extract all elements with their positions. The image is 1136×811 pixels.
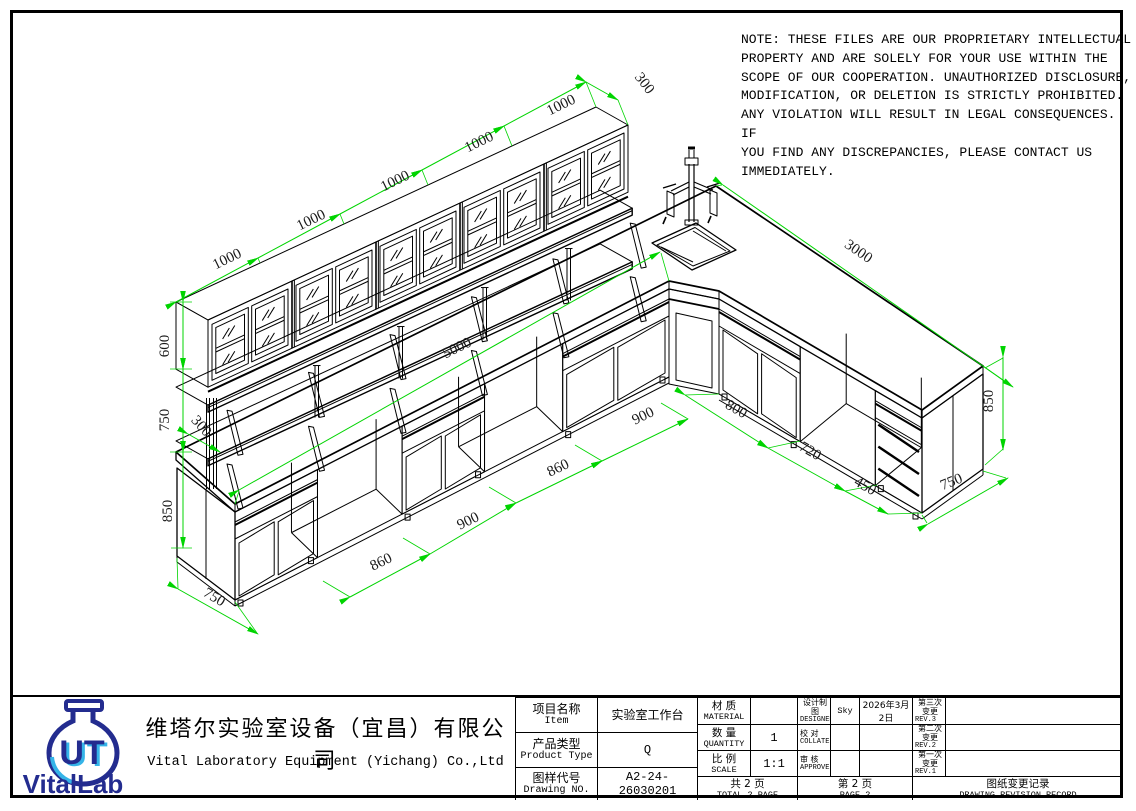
rev2-note-cell <box>945 724 1123 750</box>
item-label-cell: 项目名称 Item <box>515 697 597 732</box>
dim-label-1000: 1000 <box>294 207 328 235</box>
company-cell: UT UT VitalLab 维塔尔实验室设备（宜昌）有限公司 Vital La… <box>13 697 515 800</box>
collate-value-cell <box>830 724 859 750</box>
scale-label-en: SCALE <box>711 765 737 775</box>
designer-value-cell: Sky <box>830 697 859 724</box>
product-type-value: Q <box>644 743 651 757</box>
rev2-label-cell: 第二次变更 REV.2 <box>912 724 945 750</box>
logo-brand-text: VitalLab <box>13 769 133 800</box>
rev3-label-cell: 第三次变更 REV.3 <box>912 697 945 724</box>
quantity-label-cell: 数 量 QUANTITY <box>697 724 750 750</box>
title-block: UT UT VitalLab 维塔尔实验室设备（宜昌）有限公司 Vital La… <box>13 695 1123 798</box>
designer-label-en: DESIGNER <box>800 716 830 725</box>
dim-label-900: 900 <box>630 404 657 428</box>
dim-label-850: 850 <box>160 500 176 523</box>
quantity-label-en: QUANTITY <box>704 739 745 749</box>
revision-record-en: DRAWING REVISION RECORD <box>959 790 1076 800</box>
scale-value: 1:1 <box>763 757 785 771</box>
dim-label-1000: 1000 <box>210 246 244 274</box>
product-type-label-en: Product Type <box>520 751 592 763</box>
item-label-cn: 项目名称 <box>532 702 580 716</box>
collate-label-en: COLLATE <box>800 738 829 747</box>
page-number-en: PAGE 2 <box>840 790 871 800</box>
total-pages-cn: 共 2 页 <box>730 778 764 790</box>
collate-date-cell <box>859 724 912 750</box>
quantity-value-cell: 1 <box>750 724 797 750</box>
drawing-no-value-cell: A2-24-26030201 <box>597 767 697 800</box>
drawing-sheet: 1000100010001000100030060075030085075050… <box>0 0 1136 811</box>
collate-label-cell: 校 对 COLLATE <box>797 724 830 750</box>
item-value: 实验室工作台 <box>611 708 683 722</box>
rev3-note-cell <box>945 697 1123 724</box>
product-type-label-cn: 产品类型 <box>532 737 580 751</box>
dim-label-860: 860 <box>545 456 572 480</box>
dim-label-800: 800 <box>722 397 749 422</box>
designer-date: 2026年3月2日 <box>860 698 912 724</box>
dim-label-1000: 1000 <box>462 129 496 157</box>
drawing-no-value: A2-24-26030201 <box>598 770 697 798</box>
dim-label-900: 900 <box>455 509 482 533</box>
item-label-en: Item <box>544 716 568 728</box>
dim-label-3000: 3000 <box>841 237 875 267</box>
dim-label-1000: 1000 <box>378 168 412 196</box>
dim-label-750: 750 <box>200 585 228 610</box>
product-type-value-cell: Q <box>597 732 697 767</box>
revision-record-cn: 图纸变更记录 <box>987 778 1050 790</box>
quantity-value: 1 <box>770 731 777 745</box>
approve-date-cell <box>859 750 912 776</box>
dim-label-850: 850 <box>981 390 997 413</box>
collate-label-cn: 校 对 <box>800 729 819 738</box>
page-number-cell: 第 2 页 PAGE 2 <box>797 776 912 800</box>
item-value-cell: 实验室工作台 <box>597 697 697 732</box>
dim-label-5000: 5000 <box>440 335 474 363</box>
company-name-en: Vital Laboratory Equipment (Yichang) Co.… <box>138 755 513 770</box>
designer-label-cn: 设计制图 <box>800 698 830 716</box>
dim-label-600: 600 <box>157 335 173 358</box>
rev1-note-cell <box>945 750 1123 776</box>
dim-label-720: 720 <box>796 439 823 464</box>
designer-date-cell: 2026年3月2日 <box>859 697 912 724</box>
product-type-label-cell: 产品类型 Product Type <box>515 732 597 767</box>
dim-label-450: 450 <box>851 474 878 499</box>
rev2-en: REV.2 <box>915 742 936 750</box>
drawing-no-label-cn: 图样代号 <box>532 771 580 785</box>
page-number-cn: 第 2 页 <box>838 778 872 790</box>
approve-label-en: APPROVE <box>800 764 829 773</box>
rev1-en: REV.1 <box>915 768 936 776</box>
rev1-cn: 第一次变更 <box>915 750 945 768</box>
scale-label-cn: 比 例 <box>712 753 736 765</box>
proprietary-note: NOTE: THESE FILES ARE OUR PROPRIETARY IN… <box>741 31 1133 181</box>
approve-value-cell <box>830 750 859 776</box>
designer-label-cell: 设计制图 DESIGNER <box>797 697 830 724</box>
material-label-cell: 材 质 MATERIAL <box>697 697 750 724</box>
rev3-cn: 第三次变更 <box>915 698 945 716</box>
rev2-cn: 第二次变更 <box>915 724 945 742</box>
approve-label-cn: 审 核 <box>800 755 819 764</box>
drawing-no-label-en: Drawing NO. <box>523 785 589 797</box>
approve-label-cell: 审 核 APPROVE <box>797 750 830 776</box>
scale-label-cell: 比 例 SCALE <box>697 750 750 776</box>
scale-value-cell: 1:1 <box>750 750 797 776</box>
total-pages-en: TOTAL 2 PAGE <box>717 790 778 800</box>
dim-label-300: 300 <box>631 70 657 98</box>
designer-value: Sky <box>837 706 852 716</box>
material-value-cell <box>750 697 797 724</box>
dim-label-750: 750 <box>157 409 173 432</box>
revision-record-cell: 图纸变更记录 DRAWING REVISION RECORD <box>912 776 1123 800</box>
quantity-label-cn: 数 量 <box>712 727 736 739</box>
material-label-en: MATERIAL <box>704 712 745 722</box>
rev1-label-cell: 第一次变更 REV.1 <box>912 750 945 776</box>
total-pages-cell: 共 2 页 TOTAL 2 PAGE <box>697 776 797 800</box>
rev3-en: REV.3 <box>915 716 936 725</box>
drawing-no-label-cell: 图样代号 Drawing NO. <box>515 767 597 800</box>
dim-label-1000: 1000 <box>544 92 578 120</box>
dim-label-860: 860 <box>368 550 395 574</box>
logo-ut: UT <box>59 734 105 772</box>
material-label-cn: 材 质 <box>712 700 736 712</box>
